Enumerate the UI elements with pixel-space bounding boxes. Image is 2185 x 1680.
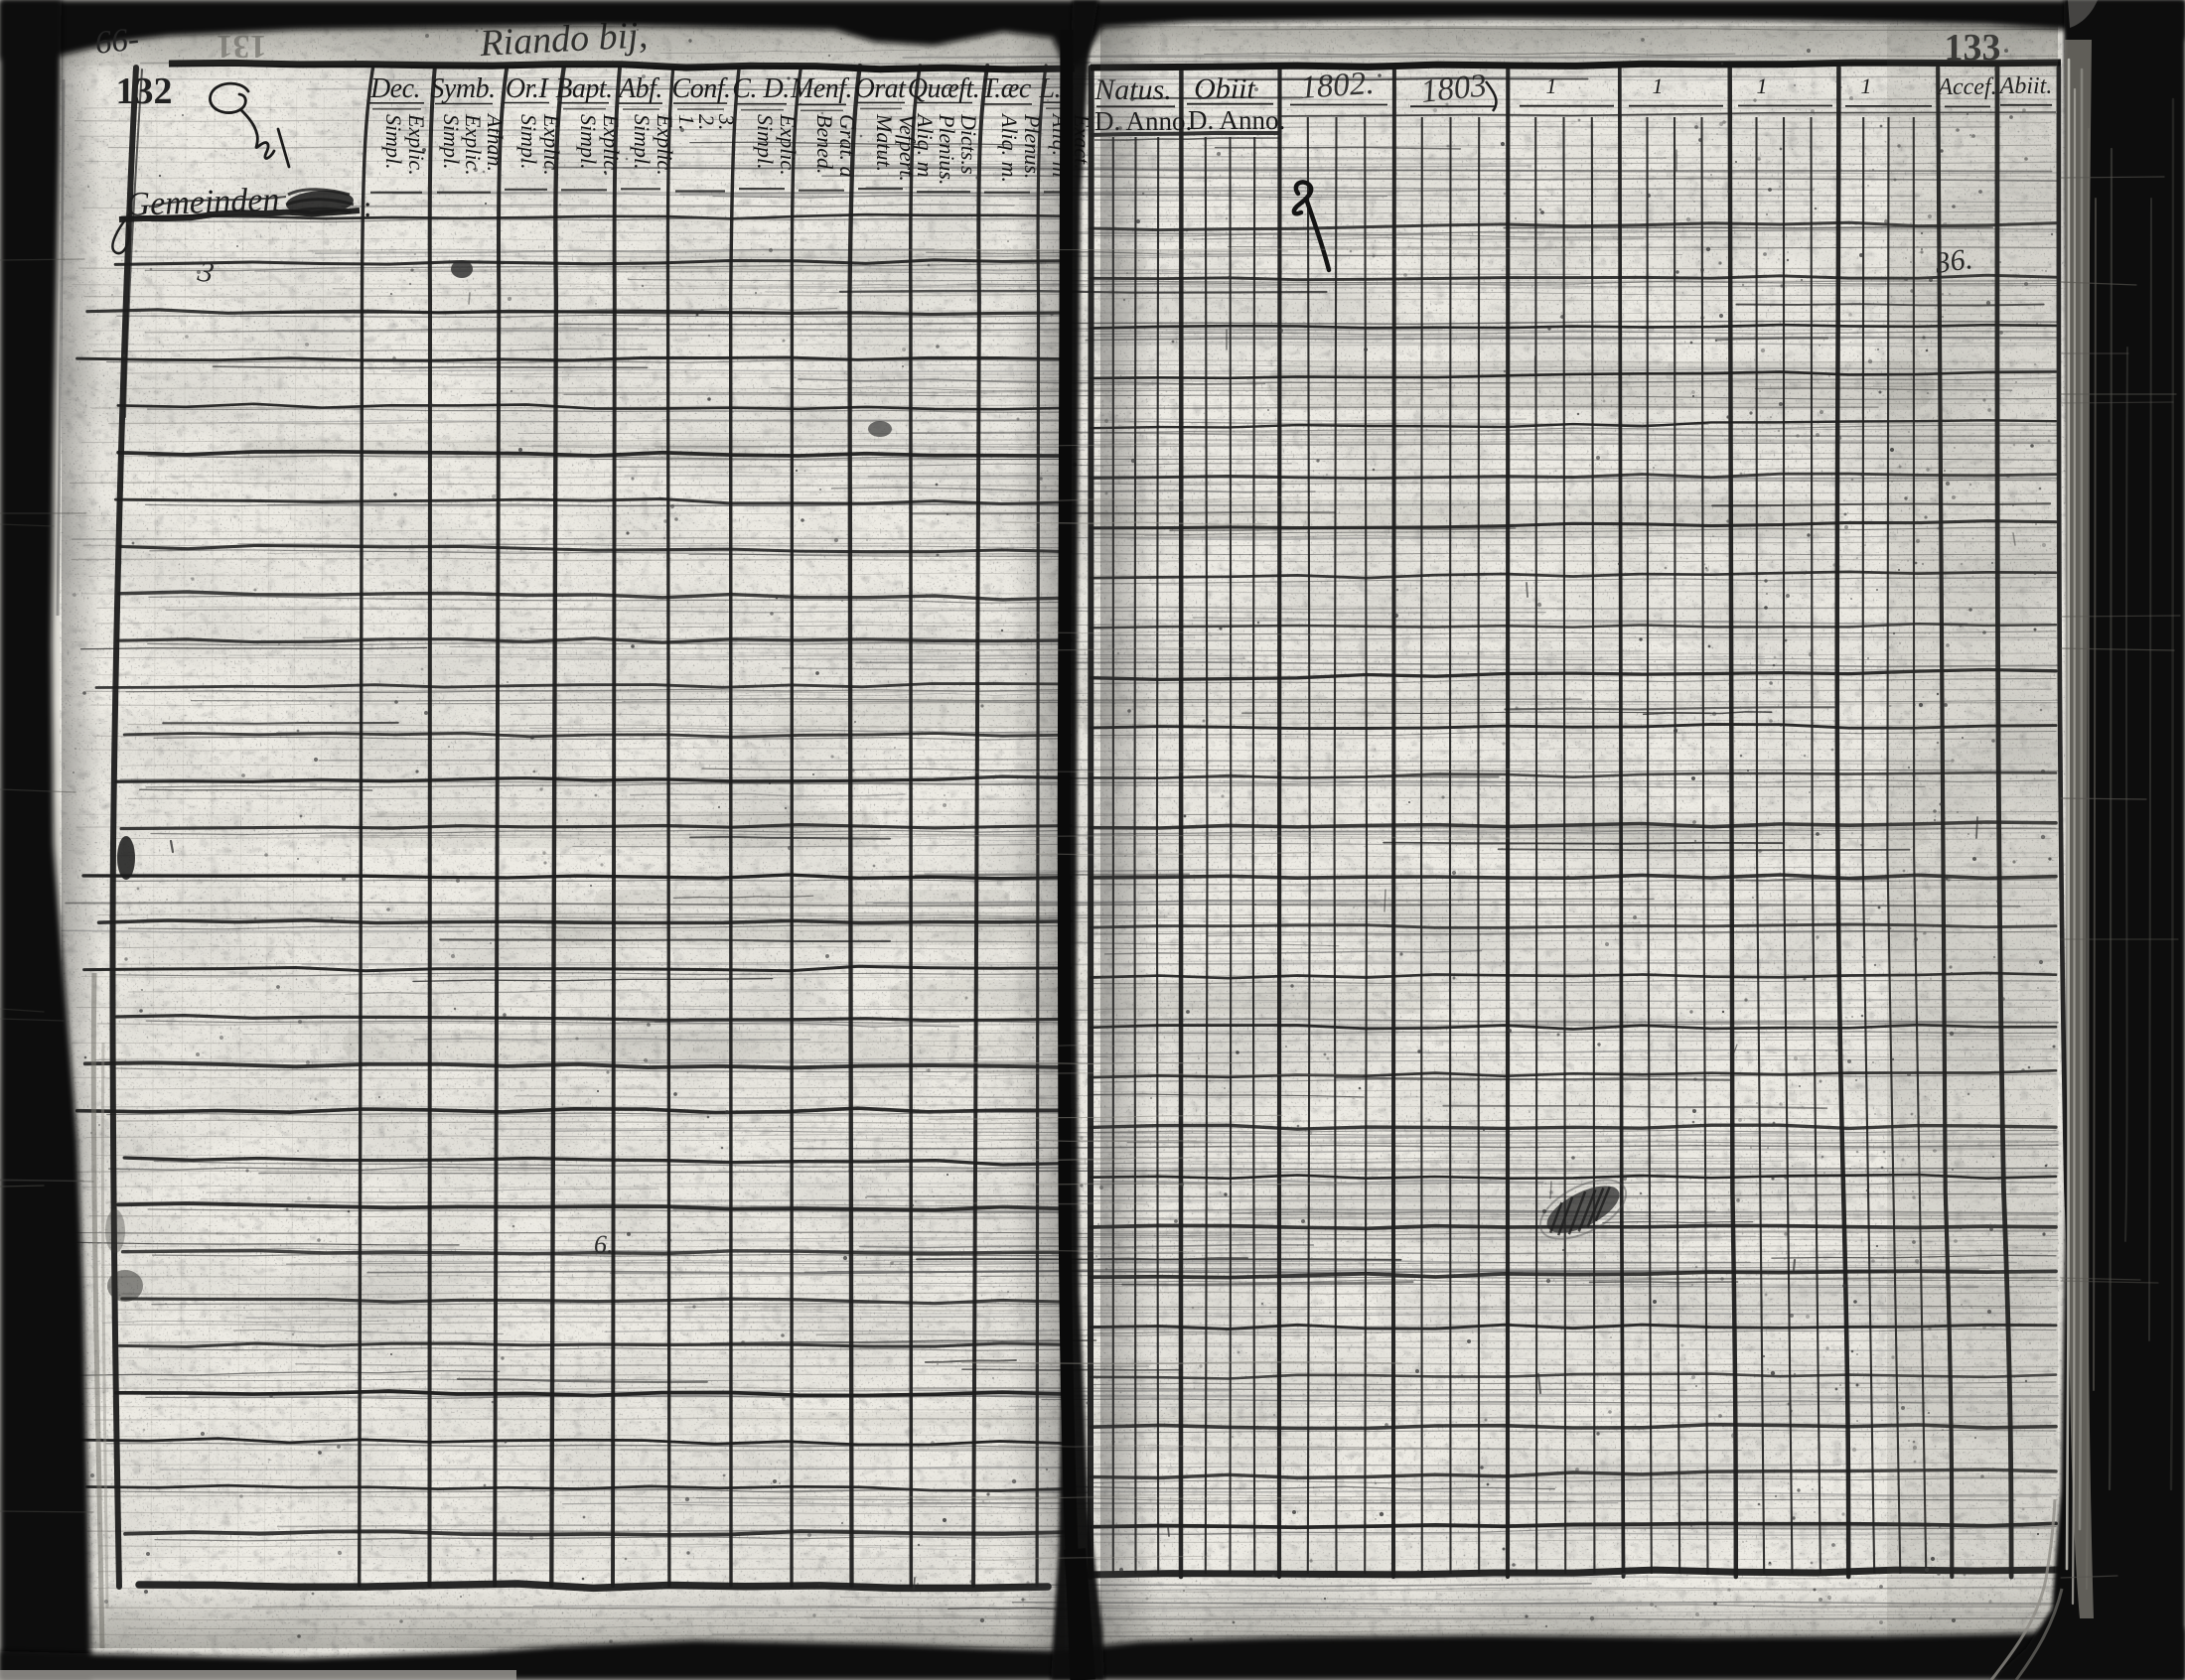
svg-text::: :: [364, 191, 371, 223]
svg-text:Explic.: Explic.: [404, 113, 429, 176]
svg-text:Explic.: Explic.: [539, 113, 564, 176]
svg-text:Simpl.: Simpl.: [381, 114, 406, 170]
svg-text:Explic.: Explic.: [599, 113, 624, 176]
svg-text:Aliq. m: Aliq. m: [913, 112, 938, 178]
svg-text:Explic.: Explic.: [776, 113, 801, 176]
svg-text:6.: 6.: [594, 1230, 614, 1259]
svg-text:Explic.: Explic.: [653, 113, 677, 176]
svg-text:Matut.: Matut.: [872, 113, 897, 172]
svg-text:Simpl.: Simpl.: [576, 114, 601, 170]
svg-text:Grat. a: Grat. a: [835, 114, 860, 178]
svg-text:Bened.: Bened.: [812, 114, 837, 174]
svg-text:66-: 66-: [93, 22, 141, 62]
svg-text:Simpl.: Simpl.: [630, 114, 655, 170]
svg-text:Simpl.: Simpl.: [439, 114, 464, 170]
svg-text:D. Anno.: D. Anno.: [1188, 105, 1285, 135]
svg-text:1.: 1.: [674, 114, 699, 131]
svg-text:Simpl.: Simpl.: [753, 114, 778, 170]
svg-text:Simpl.: Simpl.: [516, 114, 541, 170]
